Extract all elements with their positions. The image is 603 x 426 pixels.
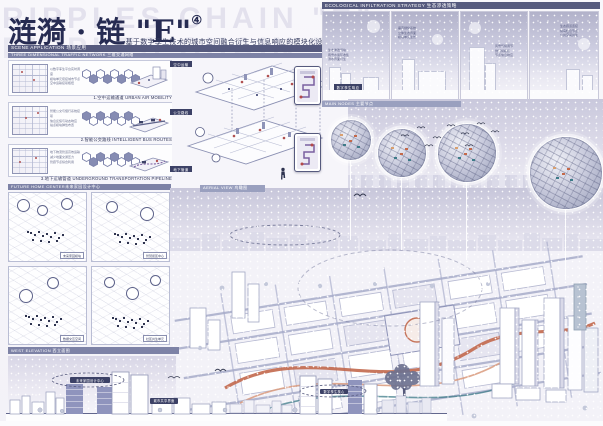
traffic-panel-air-note: 以数字孪生平台实时调度 模块单元衔接城市节点 空中运输接驳枢纽 xyxy=(50,67,82,86)
eco-panel-2: 垂直绿化系统 立体生态界面 模块单元生长 xyxy=(391,11,459,101)
traffic-panel-underground-axon xyxy=(127,147,171,174)
callout-circle xyxy=(104,277,115,288)
traffic-panel-underground-map xyxy=(12,148,48,174)
eco-note: 风雪气候调节 微气候模拟 节点信息响应 xyxy=(495,44,513,58)
section-bar-ecological: ECOLOGICAL INFILTRATION STRATEGY 生态渗透策略 xyxy=(322,2,600,9)
traffic-panel-air-axon xyxy=(127,63,171,93)
node-bubble-4 xyxy=(529,136,603,210)
tile-label: 数据交互空间 xyxy=(60,335,84,342)
section-bar-aerial-view: AERIAL VIEW 鸟瞰图 xyxy=(200,185,265,192)
traffic-panel-air: 以数字孪生平台实时调度 模块单元衔接城市节点 空中运输接驳枢纽 xyxy=(8,60,174,96)
bird-flock xyxy=(395,118,515,158)
callout-circle xyxy=(150,275,161,286)
eco-note: 垂直绿化系统 立体生态界面 模块单元生长 xyxy=(398,26,416,40)
tile-label: 智慧街区中心 xyxy=(143,252,167,259)
callout-circle xyxy=(19,289,33,303)
callout-circle xyxy=(61,198,73,210)
design-poster: RIPPLES CHAIN "E" RIPPLES CHAIN "E" 涟漪 ·… xyxy=(0,0,603,426)
traffic-panel-bus-axon xyxy=(127,105,171,135)
iso-badge-air: 空中运输 xyxy=(170,61,192,67)
traffic-panel-underground: 地下物流管道高效运输 减少地面交通压力 管廊节点综合利用 xyxy=(8,144,174,177)
traffic-panel-bus: 智能公交与慢行系统接驳 信息反馈与动态响应 站点模块弹性布置 xyxy=(8,102,174,138)
traffic-panel-underground-note: 地下物流管道高效运输 减少地面交通压力 管廊节点综合利用 xyxy=(50,150,82,164)
traffic-panel-bus-note: 智能公交与慢行系统接驳 信息反馈与动态响应 站点模块弹性布置 xyxy=(50,109,82,128)
callout-circle xyxy=(17,199,30,212)
elevation-pill-center: 未来家园设计中心 xyxy=(70,377,110,383)
callout-circle xyxy=(106,201,118,213)
tile-label: 未来家园模块 xyxy=(60,252,84,259)
bubble-stem xyxy=(565,206,566,280)
future-tile-4: 社区共生单元 xyxy=(91,266,170,345)
phone-route-screen xyxy=(296,135,319,170)
elevation-pill-right: 城市共享界面 xyxy=(150,398,178,404)
eco-note: 生态渗透模块 雨雪水循环收集 滨水界面衍生 xyxy=(328,48,349,62)
iso-badge-bus: 公交路线 xyxy=(170,109,192,115)
callout-circle xyxy=(37,205,48,216)
smartphone-mockup-lower xyxy=(294,133,321,172)
future-tile-3: 数据交互空间 xyxy=(8,266,87,345)
elevation-pill-mid: 数字孪生核心 xyxy=(320,389,348,395)
section-bar-future-home: FUTURE HOME CENTER未来家园设计中心 xyxy=(8,184,171,191)
iso-badge-underground: 地下管道 xyxy=(170,166,192,172)
traffic-panel-bus-map xyxy=(12,106,48,135)
traffic-panel-air-map xyxy=(12,64,48,93)
eco-panel-4: 生态廊道连接 候鸟栖息节点 公共空间共生 xyxy=(529,11,599,101)
section-bar-main-nodes: MAIN NODES 主要节点 xyxy=(322,101,461,107)
west-elevation-drawing xyxy=(0,352,447,426)
section-bar-west-elevation: WEST ELEVATION 西立面图 xyxy=(8,347,179,354)
traffic-caption-underground: 3.地下运输管道 UNDERGROUND TRANSPORTATION PIPE… xyxy=(8,176,172,182)
bubble-stem xyxy=(350,158,351,240)
tile-label: 社区共生单元 xyxy=(143,335,167,342)
node-bubble-1 xyxy=(330,119,372,161)
eco-note: 生态廊道连接 候鸟栖息节点 公共空间共生 xyxy=(560,24,578,38)
node-badge: 数字孪生响应 xyxy=(334,84,362,90)
bird-icon xyxy=(214,366,228,374)
callout-circle xyxy=(126,287,139,300)
section-bar-scene-application: SCENE APPLICATION 场景应用 xyxy=(8,45,333,52)
callout-circle xyxy=(140,207,154,221)
future-tile-2: 智慧街区中心 xyxy=(91,192,170,262)
bubble-stem xyxy=(401,174,402,250)
bird-icon xyxy=(352,190,368,199)
callout-circle xyxy=(47,277,59,289)
smartphone-mockup-upper xyxy=(294,66,321,105)
bubble-stem xyxy=(466,180,467,260)
eco-panel-3: 风雪气候调节 微气候模拟 节点信息响应 xyxy=(460,11,528,101)
traffic-caption-air: 1.空中运输通道 URBAN AIR MOBILITY xyxy=(8,95,172,101)
phone-route-screen xyxy=(296,68,319,103)
traffic-caption-bus: 2.智能公交路线 INTELLIGENT BUS ROUTES xyxy=(8,137,172,143)
bottom-margin xyxy=(0,421,603,426)
future-tile-1: 未来家园模块 xyxy=(8,192,87,262)
title-superscript: ④ xyxy=(191,13,202,27)
